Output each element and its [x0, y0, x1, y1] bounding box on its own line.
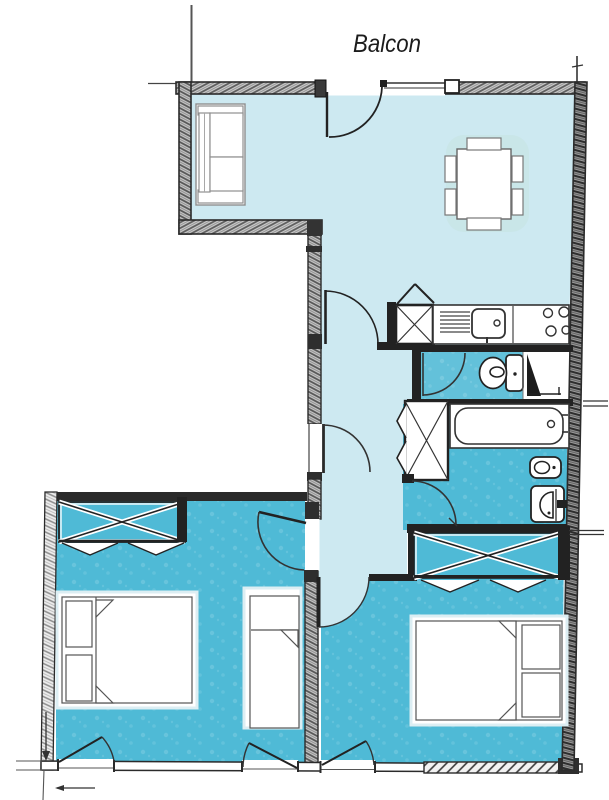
svg-text:Balcon: Balcon: [353, 30, 421, 58]
